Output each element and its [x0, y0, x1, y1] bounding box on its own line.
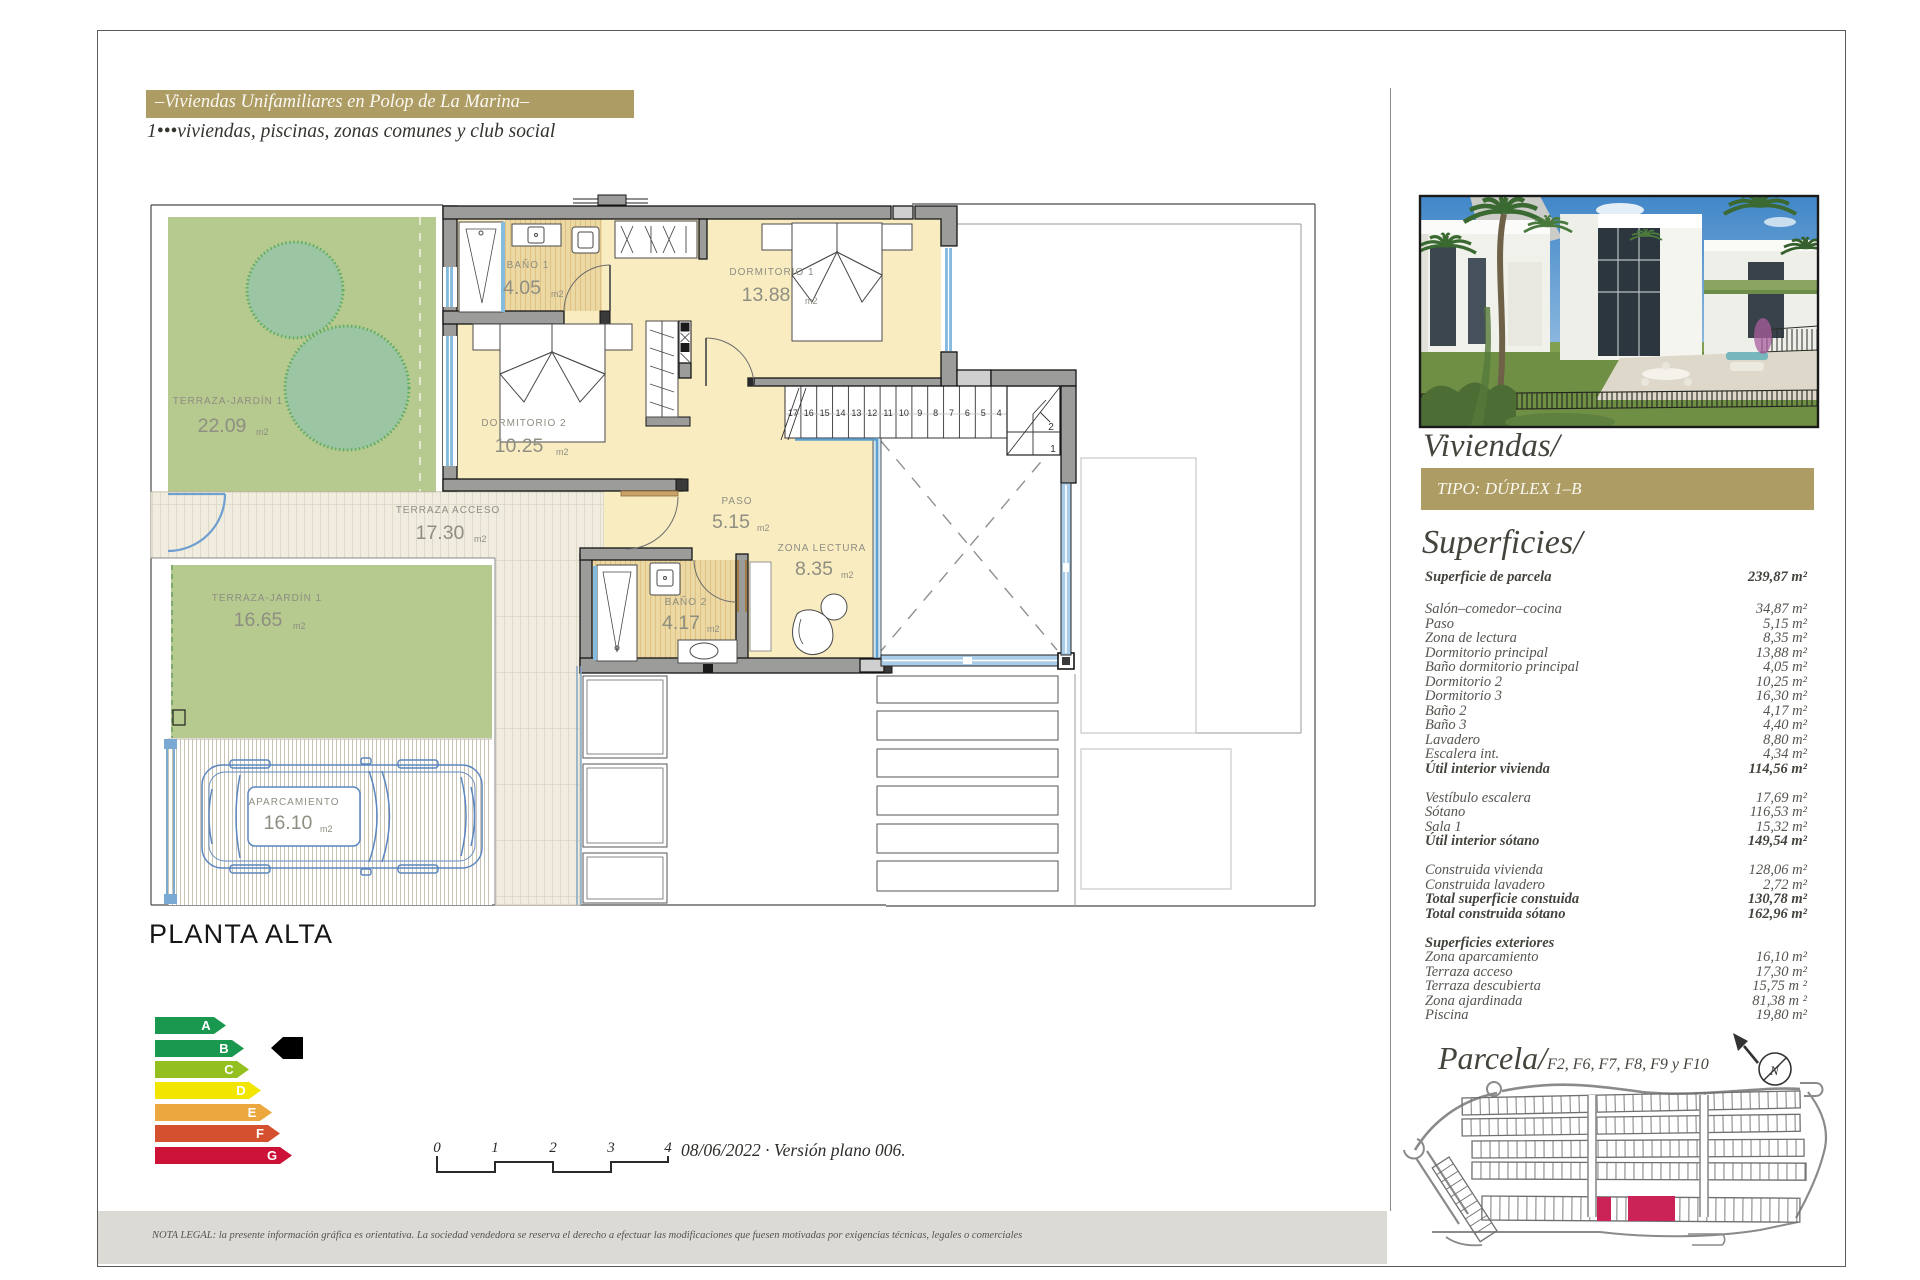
svg-text:A: A: [201, 1018, 211, 1033]
svg-text:1: 1: [1050, 444, 1056, 455]
svg-text:4: 4: [664, 1140, 672, 1156]
svg-text:BAÑO 1: BAÑO 1: [507, 258, 550, 271]
svg-text:m2: m2: [551, 289, 564, 299]
svg-text:5.15: 5.15: [712, 511, 750, 533]
svg-text:6: 6: [965, 408, 970, 418]
svg-text:G: G: [267, 1148, 277, 1163]
svg-text:m2: m2: [256, 427, 269, 437]
svg-text:5: 5: [981, 408, 986, 418]
svg-text:12: 12: [867, 408, 877, 418]
svg-text:N: N: [1769, 1063, 1780, 1078]
svg-text:4.17: 4.17: [662, 612, 700, 634]
svg-text:F: F: [256, 1126, 264, 1141]
svg-text:22.09: 22.09: [198, 415, 247, 437]
svg-text:16.10: 16.10: [264, 812, 313, 834]
svg-text:TERRAZA ACCESO: TERRAZA ACCESO: [396, 505, 501, 516]
svg-text:8.35: 8.35: [795, 558, 833, 580]
svg-text:10.25: 10.25: [495, 435, 544, 457]
svg-text:10: 10: [899, 408, 909, 418]
svg-text:E: E: [248, 1105, 257, 1120]
svg-text:m2: m2: [474, 534, 487, 544]
svg-text:PASO: PASO: [721, 496, 752, 507]
svg-text:14: 14: [835, 408, 845, 418]
svg-text:8: 8: [933, 408, 938, 418]
svg-text:7: 7: [949, 408, 954, 418]
svg-text:m2: m2: [841, 570, 854, 580]
svg-text:4.05: 4.05: [503, 277, 541, 299]
svg-text:m2: m2: [293, 621, 306, 631]
svg-text:16: 16: [804, 408, 814, 418]
svg-text:15: 15: [820, 408, 830, 418]
svg-text:3: 3: [606, 1140, 615, 1156]
svg-text:2: 2: [549, 1140, 557, 1156]
svg-text:DORMITORIO 2: DORMITORIO 2: [481, 418, 566, 429]
svg-text:m2: m2: [320, 824, 333, 834]
svg-text:D: D: [236, 1083, 245, 1098]
svg-text:2: 2: [1048, 422, 1054, 433]
svg-text:9: 9: [917, 408, 922, 418]
svg-text:13.88: 13.88: [742, 284, 791, 306]
svg-text:1: 1: [491, 1140, 499, 1156]
svg-text:m2: m2: [805, 296, 818, 306]
svg-text:ZONA LECTURA: ZONA LECTURA: [778, 543, 867, 554]
svg-text:17.30: 17.30: [416, 522, 465, 544]
svg-text:16.65: 16.65: [234, 609, 283, 631]
svg-text:m2: m2: [556, 447, 569, 457]
svg-text:TERRAZA-JARDÍN 1: TERRAZA-JARDÍN 1: [212, 591, 322, 604]
svg-text:B: B: [219, 1041, 228, 1056]
svg-text:TERRAZA-JARDÍN 1: TERRAZA-JARDÍN 1: [173, 394, 283, 407]
svg-text:13: 13: [851, 408, 861, 418]
svg-text:11: 11: [883, 408, 892, 418]
svg-text:C: C: [224, 1062, 234, 1077]
svg-text:0: 0: [433, 1140, 441, 1156]
svg-text:APARCAMIENTO: APARCAMIENTO: [248, 797, 339, 808]
svg-text:BAÑO 2: BAÑO 2: [665, 595, 708, 608]
svg-text:DORMITORIO 1: DORMITORIO 1: [729, 267, 814, 278]
svg-text:m2: m2: [757, 523, 770, 533]
svg-text:4: 4: [997, 408, 1002, 418]
svg-text:m2: m2: [707, 624, 720, 634]
